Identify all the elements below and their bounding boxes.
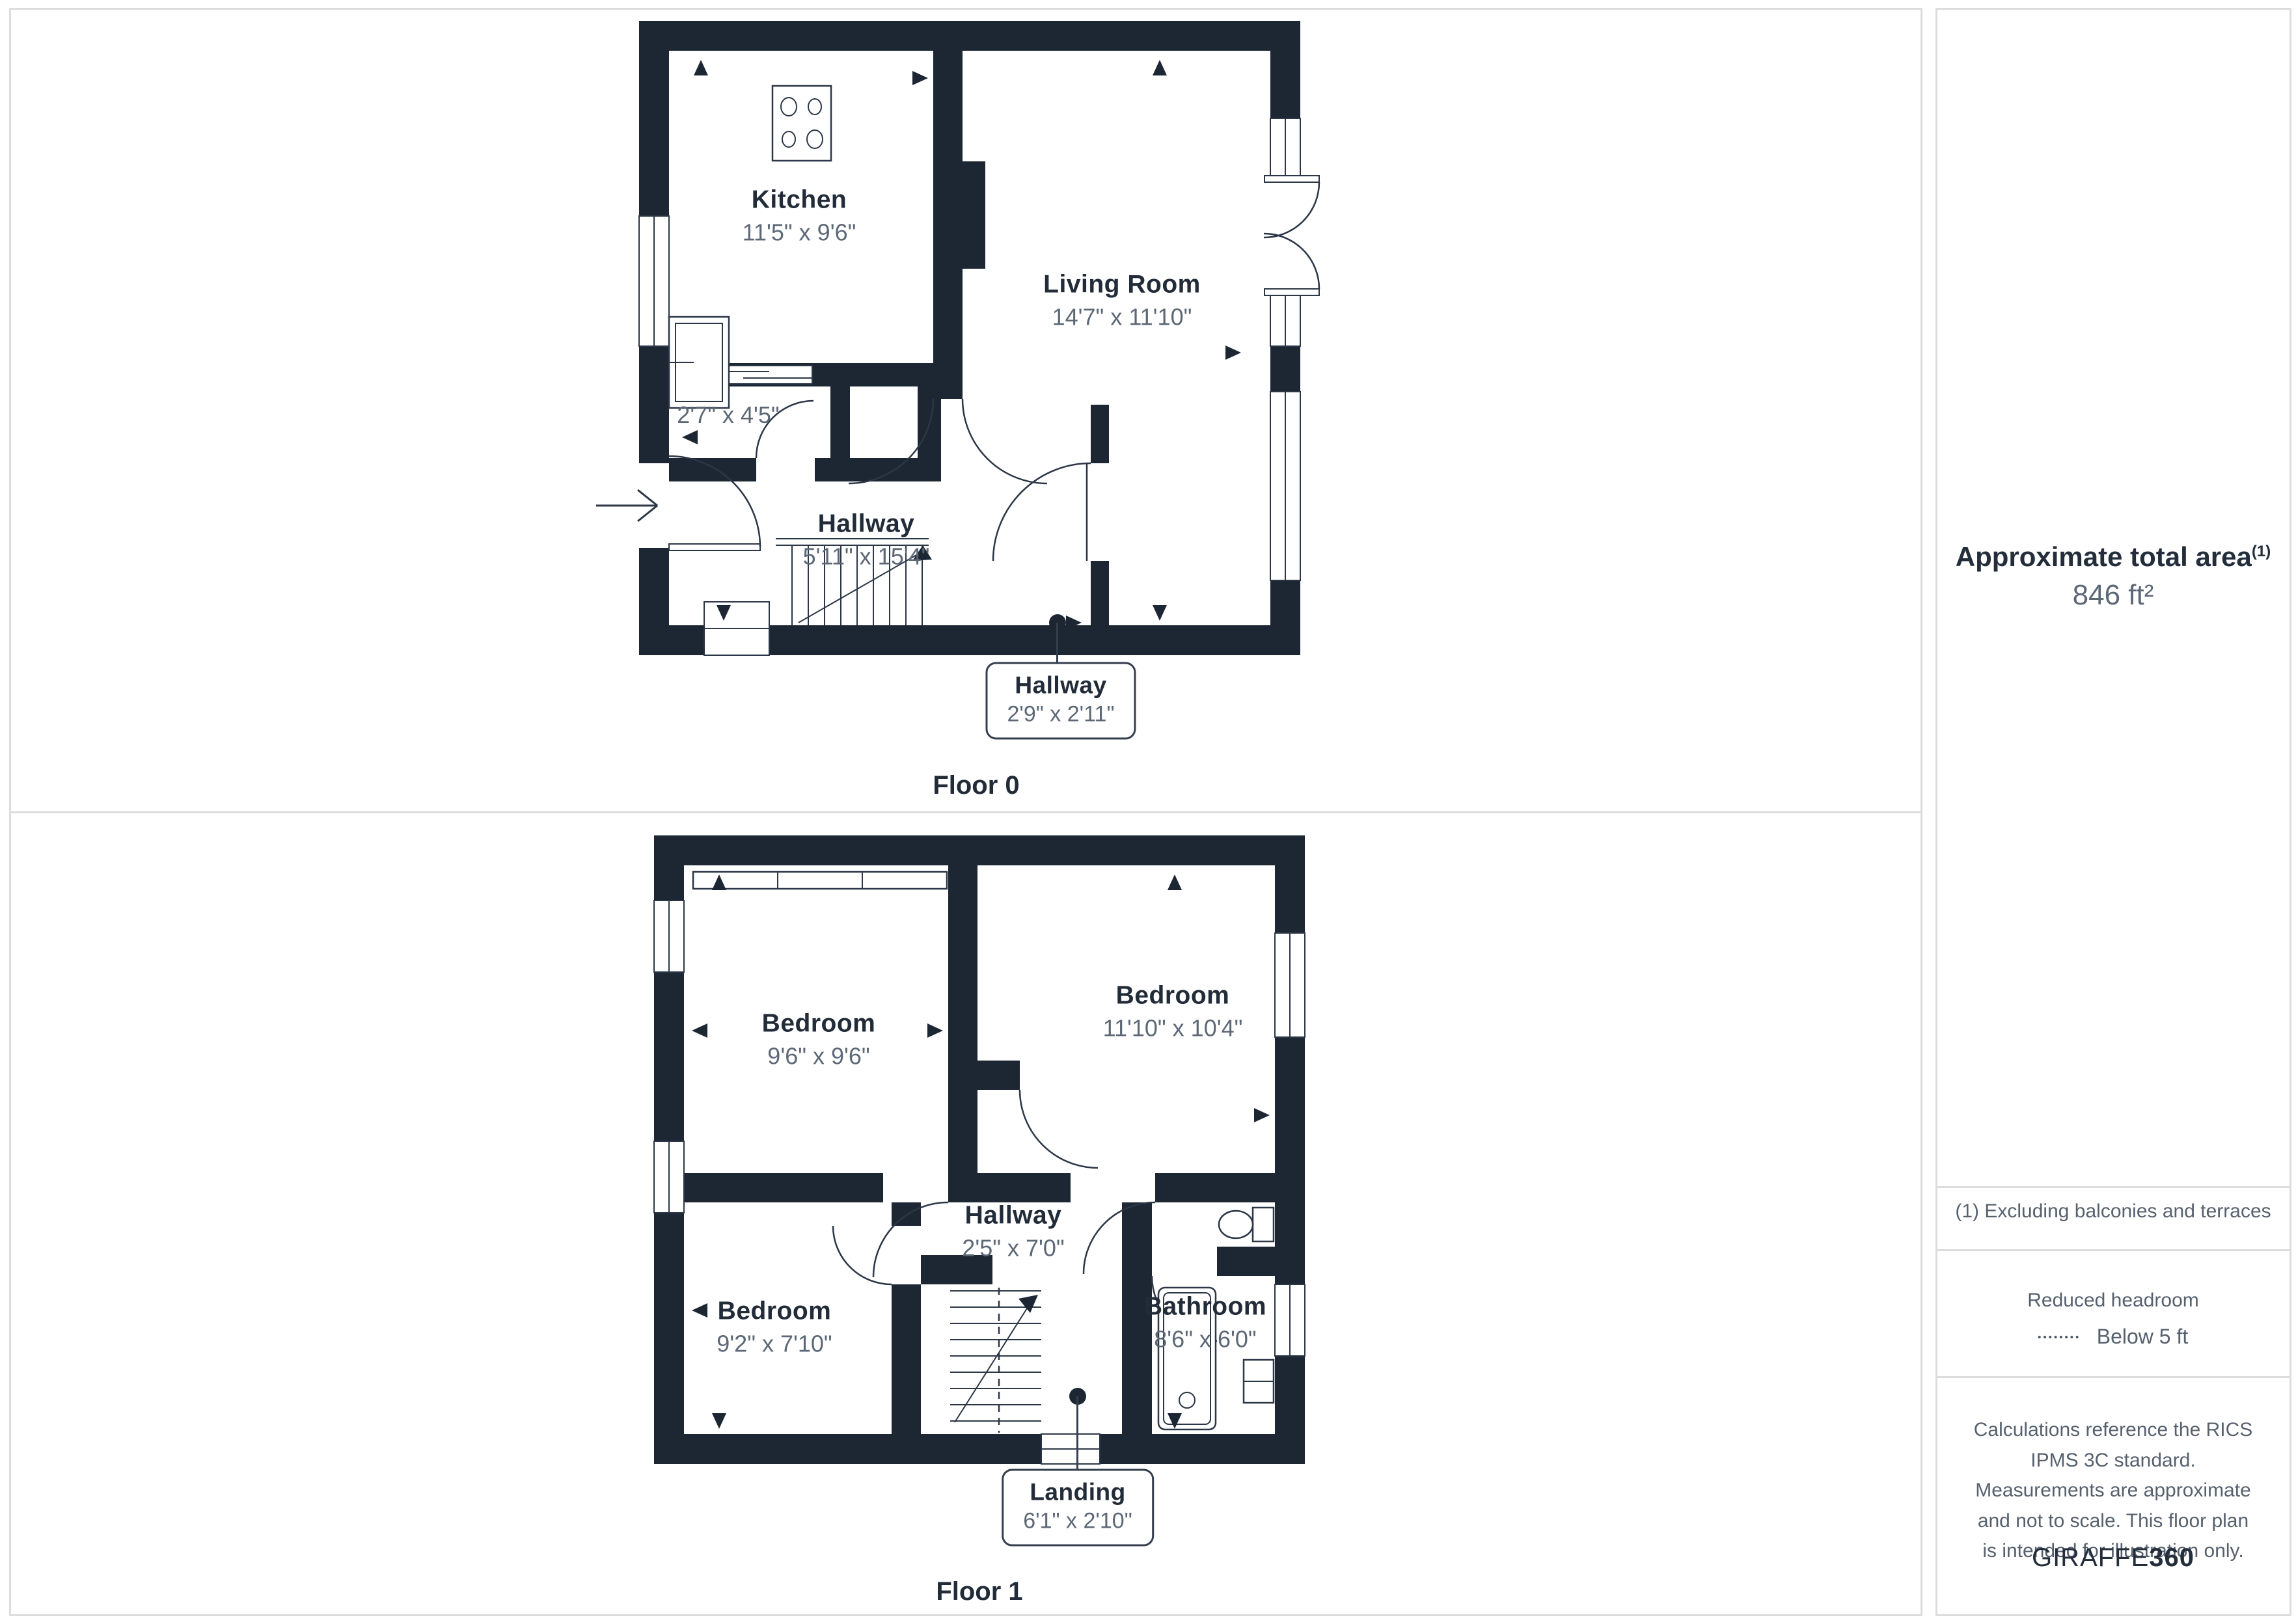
floor0-walls [639,21,1300,655]
stove-icon [772,86,831,161]
floorplan-page: { "colors": { "wall": "#1d2734", "room_n… [0,0,2296,1624]
reduced-headroom-legend: Below 5 ft [2038,1325,2189,1349]
landing-callout-leader [1076,1396,1078,1476]
sidebar-divider-2 [1937,1249,2289,1251]
floor1-label: Floor 1 [936,1577,1022,1606]
wardrobe [693,872,947,889]
area-footnote: (1) Excluding balconies and terraces [1955,1200,2271,1223]
room-label-bathroom: Bathroom 8'6" x 6'0" [1144,1293,1266,1353]
room-label-hallway-f1: Hallway 2'5" x 7'0" [962,1202,1064,1262]
room-label-hallway-f0: Hallway 5'11" x 15'4" [803,510,930,571]
room-label-bedroom-1: Bedroom 9'6" x 9'6" [762,1010,876,1070]
entry-arrow-icon [596,490,657,521]
kitchen-sink-icon [669,317,729,408]
floor0-label: Floor 0 [933,771,1019,800]
room-label-bedroom-3: Bedroom 9'2" x 7'10" [717,1297,832,1358]
bathroom-sink-icon [1244,1360,1274,1403]
floor1-plan-drawing [654,835,1305,1464]
landing-callout: Landing 6'1" x 2'10" [1002,1469,1154,1547]
room-label-bedroom-2: Bedroom 11'10" x 10'4" [1103,982,1243,1042]
hallway-callout-leader [1056,623,1058,668]
info-sidebar [1935,8,2291,1616]
reduced-headroom-title: Reduced headroom [2027,1290,2199,1312]
toilet-icon [1219,1208,1274,1241]
giraffe360-logo: GIRAFFE360 [2032,1543,2194,1573]
room-label-closet: 2'7" x 4'5" [677,401,779,429]
floor-divider [11,811,1920,813]
total-area-value: 846 ft² [2073,579,2154,612]
room-label-kitchen: Kitchen 11'5" x 9'6" [743,186,856,247]
sidebar-divider-3 [1937,1376,2289,1378]
hallway-callout: Hallway 2'9" x 2'11" [985,662,1136,740]
dashed-line-icon [2038,1336,2079,1338]
floor0-plan-drawing [587,21,1329,655]
french-doors [1264,176,1319,295]
room-label-living-room: Living Room 14'7" x 11'10" [1043,271,1201,331]
total-area-title: Approximate total area(1) [1956,541,2271,573]
footnote-marker: (1) [2252,543,2271,560]
sidebar-divider-1 [1937,1186,2289,1188]
floor1-stairs [950,1288,1041,1433]
reduced-headroom-value: Below 5 ft [2097,1325,2189,1349]
